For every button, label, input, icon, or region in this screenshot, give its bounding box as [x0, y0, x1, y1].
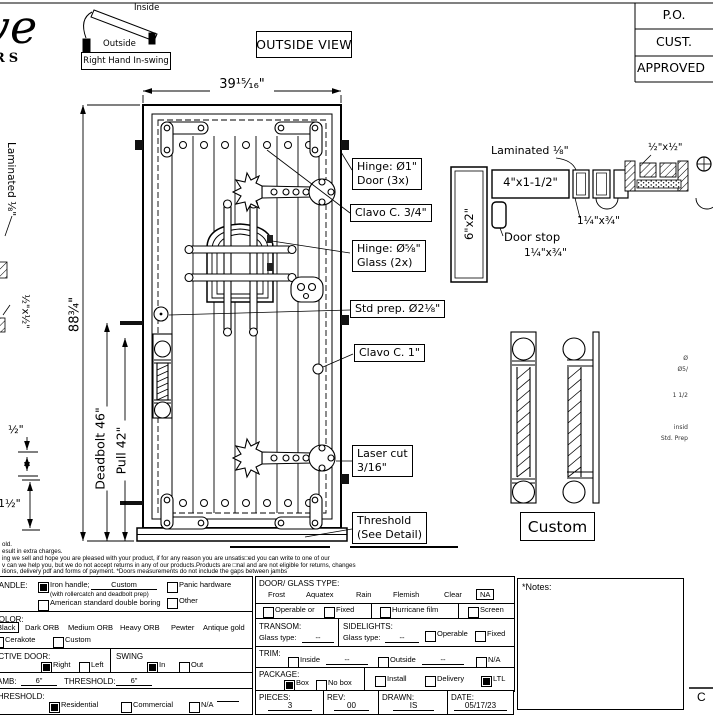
threshold-label: THRESHOLD: — [0, 692, 45, 701]
sidelights-section: SIDELIGHTS: Glass type: -- Operable Fixe… — [338, 618, 515, 648]
color-section: COLOR: Black Dark ORB Medium ORB Heavy O… — [0, 611, 253, 650]
date-cell: DATE: 05/17/23 — [447, 690, 514, 715]
threshold-value-field[interactable]: 6" — [116, 676, 152, 686]
transom-glass-field[interactable]: -- — [302, 633, 334, 643]
residential-label: Residential — [61, 701, 98, 710]
checkbox-custom-color[interactable] — [53, 637, 64, 648]
other-handle-label: Other — [179, 597, 198, 606]
rev-cell: REV: 00 — [323, 690, 380, 715]
threshold-section: THRESHOLD: Residential Commercial N/A — [0, 688, 253, 715]
checkbox-sidelights-operable[interactable] — [425, 631, 436, 642]
trim-inside-field[interactable]: -- — [326, 655, 368, 665]
notes-label: *Notes: — [522, 582, 552, 592]
glass-option-na[interactable]: NA — [476, 589, 494, 600]
delivery-section: Install Delivery LTL — [364, 667, 515, 692]
package-section: PACKAGE: Box No box — [255, 667, 367, 692]
transom-label: TRANSOM: — [259, 622, 301, 631]
checkbox-residential[interactable] — [49, 702, 60, 713]
sidelights-glass-field[interactable]: -- — [385, 633, 419, 643]
color-option-pewter[interactable]: Pewter — [171, 624, 194, 633]
rev-value[interactable]: 00 — [334, 701, 369, 711]
swing-section: SWING In Out — [110, 648, 253, 674]
date-value[interactable]: 05/17/23 — [454, 701, 507, 711]
checkbox-sidelights-fixed[interactable] — [475, 631, 486, 642]
color-option-dark-orb[interactable]: Dark ORB — [25, 624, 59, 633]
commercial-label: Commercial — [133, 701, 173, 710]
jamb-value-field[interactable]: 6" — [21, 676, 57, 686]
checkbox-commercial[interactable] — [121, 702, 132, 713]
checkbox-hurricane[interactable] — [380, 607, 391, 618]
active-door-label: ACTIVE DOOR: — [0, 652, 50, 661]
corner-letter: C — [697, 691, 706, 704]
color-option-black[interactable]: Black — [0, 622, 19, 633]
sidelights-glass-type-label: Glass type: — [343, 634, 381, 643]
checkbox-glass-operable[interactable] — [263, 607, 274, 618]
swing-in-label: In — [159, 661, 165, 670]
checkbox-delivery[interactable] — [425, 676, 436, 687]
delivery-label: Delivery — [437, 675, 464, 684]
cerakote-label: Cerakote — [5, 636, 35, 645]
package-nobox-label: No box — [328, 679, 352, 688]
transom-section: TRANSOM: Glass type: -- — [255, 618, 341, 648]
checkbox-american-boring[interactable] — [38, 600, 49, 611]
trim-label: TRIM: — [259, 649, 281, 658]
trim-section: TRIM: Inside -- Outside -- N/A — [255, 646, 515, 669]
trim-outside-field[interactable]: -- — [422, 655, 464, 665]
active-door-section: ACTIVE DOOR: Right Left — [0, 648, 113, 674]
jamb-label: JAMB: — [0, 677, 17, 686]
drawn-value[interactable]: IS — [393, 701, 434, 711]
glass-option-rain[interactable]: Rain — [356, 591, 371, 600]
notes-box[interactable]: *Notes: — [517, 578, 684, 710]
spec-sheet: { "sheet": { "logo": { "script": "ve", "… — [0, 0, 713, 713]
swing-out-label: Out — [191, 661, 203, 670]
color-option-heavy-orb[interactable]: Heavy ORB — [120, 624, 160, 633]
threshold-na-label: N/A — [201, 701, 214, 710]
american-boring-label: American standard double boring — [50, 599, 161, 608]
trim-outside-label: Outside — [390, 656, 416, 665]
handle-label: HANDLE: — [0, 581, 28, 590]
order-form: HANDLE: Iron handle; Custom (with roller… — [0, 0, 713, 713]
trim-inside-label: Inside — [300, 656, 320, 665]
threshold-size-label: THRESHOLD: — [64, 677, 116, 686]
active-right-label: Right — [53, 661, 71, 670]
glass-type-label: DOOR/ GLASS TYPE: — [259, 579, 339, 588]
hurricane-label: Hurricane film — [392, 606, 438, 615]
checkbox-other-handle[interactable] — [167, 598, 178, 609]
sidelights-label: SIDELIGHTS: — [343, 622, 393, 631]
checkbox-install[interactable] — [375, 676, 386, 687]
drawn-cell: DRAWN: IS — [378, 690, 449, 715]
pieces-cell: PIECES: 3 — [255, 690, 325, 715]
checkbox-glass-fixed[interactable] — [324, 607, 335, 618]
active-left-label: Left — [91, 661, 104, 670]
install-label: Install — [387, 675, 407, 684]
checkbox-threshold-na[interactable] — [189, 702, 200, 713]
checkbox-panic-hardware[interactable] — [167, 582, 178, 593]
glass-option-flemish[interactable]: Flemish — [393, 591, 419, 600]
transom-glass-type-label: Glass type: — [259, 634, 297, 643]
trim-na-label: N/A — [488, 656, 501, 665]
color-option-antique-gold[interactable]: Antique gold — [203, 624, 245, 633]
iron-handle-style-field[interactable]: Custom — [91, 580, 157, 590]
threshold-na-field[interactable] — [217, 701, 239, 702]
swing-label: SWING — [116, 652, 143, 661]
package-box-label: Box — [296, 679, 309, 688]
glass-option-clear[interactable]: Clear — [444, 591, 462, 600]
checkbox-ltl[interactable] — [481, 676, 492, 687]
glass-type-section: DOOR/ GLASS TYPE: Frost Aquatex Rain Fle… — [255, 576, 515, 605]
color-option-medium-orb[interactable]: Medium ORB — [68, 624, 113, 633]
ltl-label: LTL — [493, 675, 505, 684]
pieces-value[interactable]: 3 — [268, 701, 312, 711]
glass-option-frost[interactable]: Frost — [268, 591, 285, 600]
sidelights-fixed-label: Fixed — [487, 630, 505, 639]
handle-section: HANDLE: Iron handle; Custom (with roller… — [0, 576, 253, 613]
checkbox-cerakote[interactable] — [0, 637, 4, 648]
glass-option-aquatex[interactable]: Aquatex — [306, 591, 334, 600]
sidelights-operable-label: Operable — [437, 630, 468, 639]
glass-fixed-label: Fixed — [336, 606, 354, 615]
checkbox-iron-handle[interactable] — [38, 582, 49, 593]
package-label: PACKAGE: — [259, 670, 299, 679]
iron-handle-label: Iron handle; — [50, 581, 90, 590]
checkbox-screen[interactable] — [468, 607, 479, 618]
screen-label: Screen — [480, 606, 504, 615]
panic-hardware-label: Panic hardware — [179, 581, 231, 590]
custom-color-label: Custom — [65, 636, 91, 645]
glass-operable-label: Operable or — [275, 606, 315, 615]
